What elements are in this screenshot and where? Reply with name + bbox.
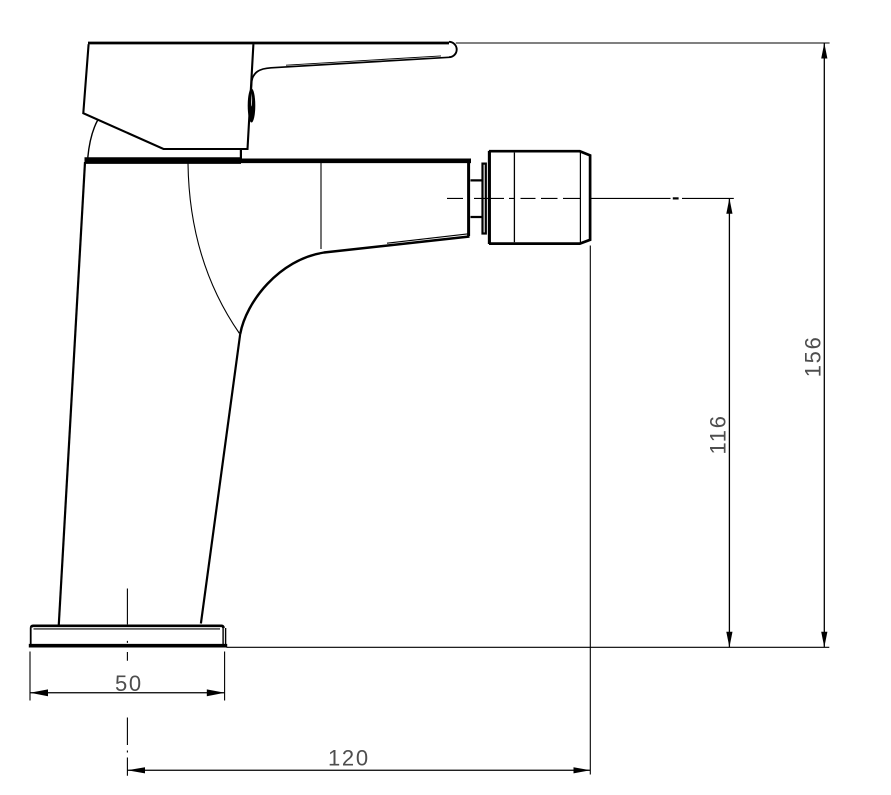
svg-text:156: 156 xyxy=(800,335,825,377)
svg-text:116: 116 xyxy=(706,414,731,454)
svg-text:50: 50 xyxy=(115,671,143,696)
svg-text:120: 120 xyxy=(328,745,370,770)
